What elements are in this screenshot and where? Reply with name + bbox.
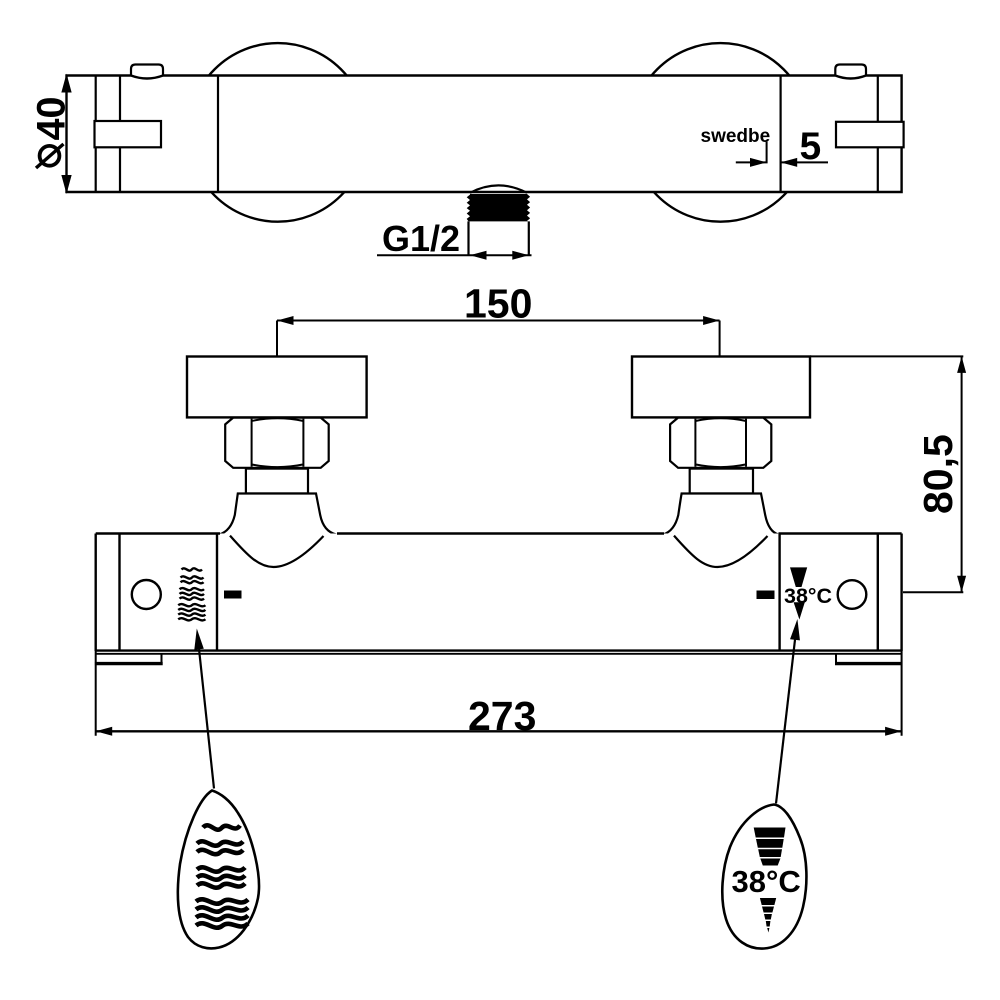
svg-text:5: 5	[800, 125, 822, 168]
svg-text:G1/2: G1/2	[382, 218, 460, 259]
svg-text:40: 40	[30, 97, 74, 141]
svg-text:38°C: 38°C	[732, 864, 801, 899]
svg-text:273: 273	[468, 693, 536, 739]
svg-text:150: 150	[464, 281, 532, 327]
svg-text:38°C: 38°C	[784, 584, 832, 608]
svg-text:swedbe: swedbe	[701, 126, 771, 147]
svg-text:80,5: 80,5	[915, 434, 961, 514]
